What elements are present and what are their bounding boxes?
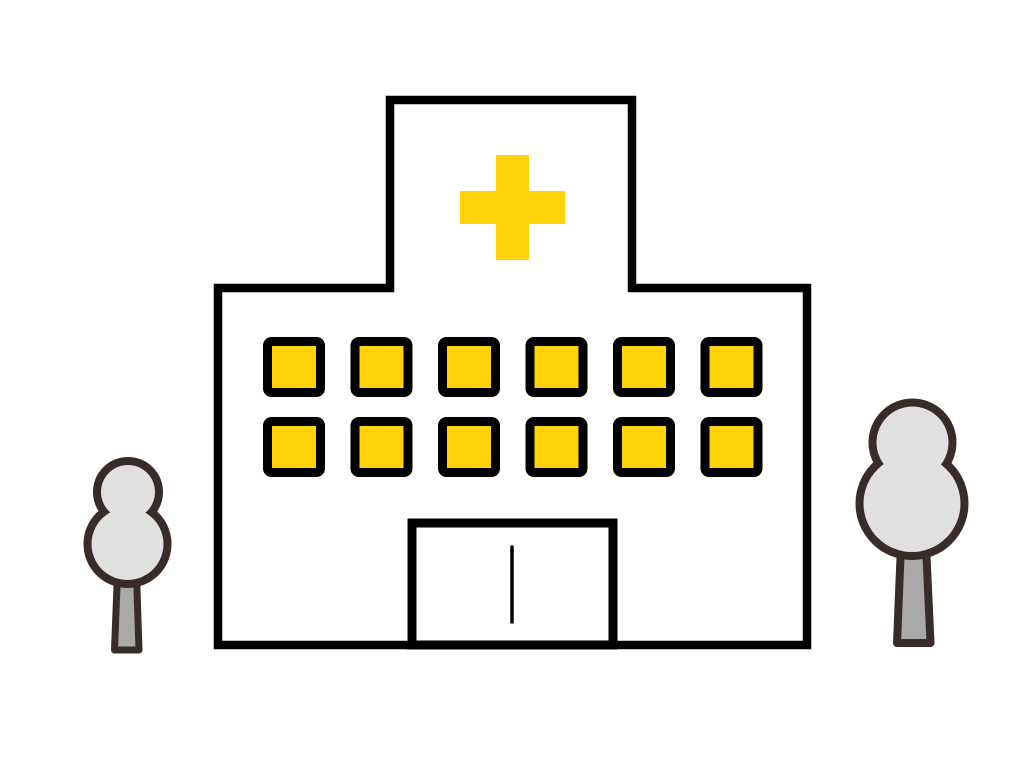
tree-right [864, 407, 961, 644]
hospital-window [443, 422, 496, 473]
hospital-illustration [0, 0, 1024, 768]
hospital-building [218, 100, 807, 645]
tree-left-canopy-bottom [92, 508, 164, 580]
hospital-window [355, 422, 408, 473]
hospital-window [705, 342, 758, 393]
illustration-canvas [0, 0, 1024, 768]
hospital-window [443, 342, 496, 393]
hospital-window [705, 422, 758, 473]
hospital-window [530, 342, 583, 393]
hospital-window [618, 422, 671, 473]
tree-left [92, 465, 164, 650]
tree-right-canopy-bottom [864, 455, 961, 552]
hospital-window [355, 342, 408, 393]
hospital-window [618, 342, 671, 393]
hospital-window [268, 342, 321, 393]
hospital-window [530, 422, 583, 473]
hospital-window [268, 422, 321, 473]
